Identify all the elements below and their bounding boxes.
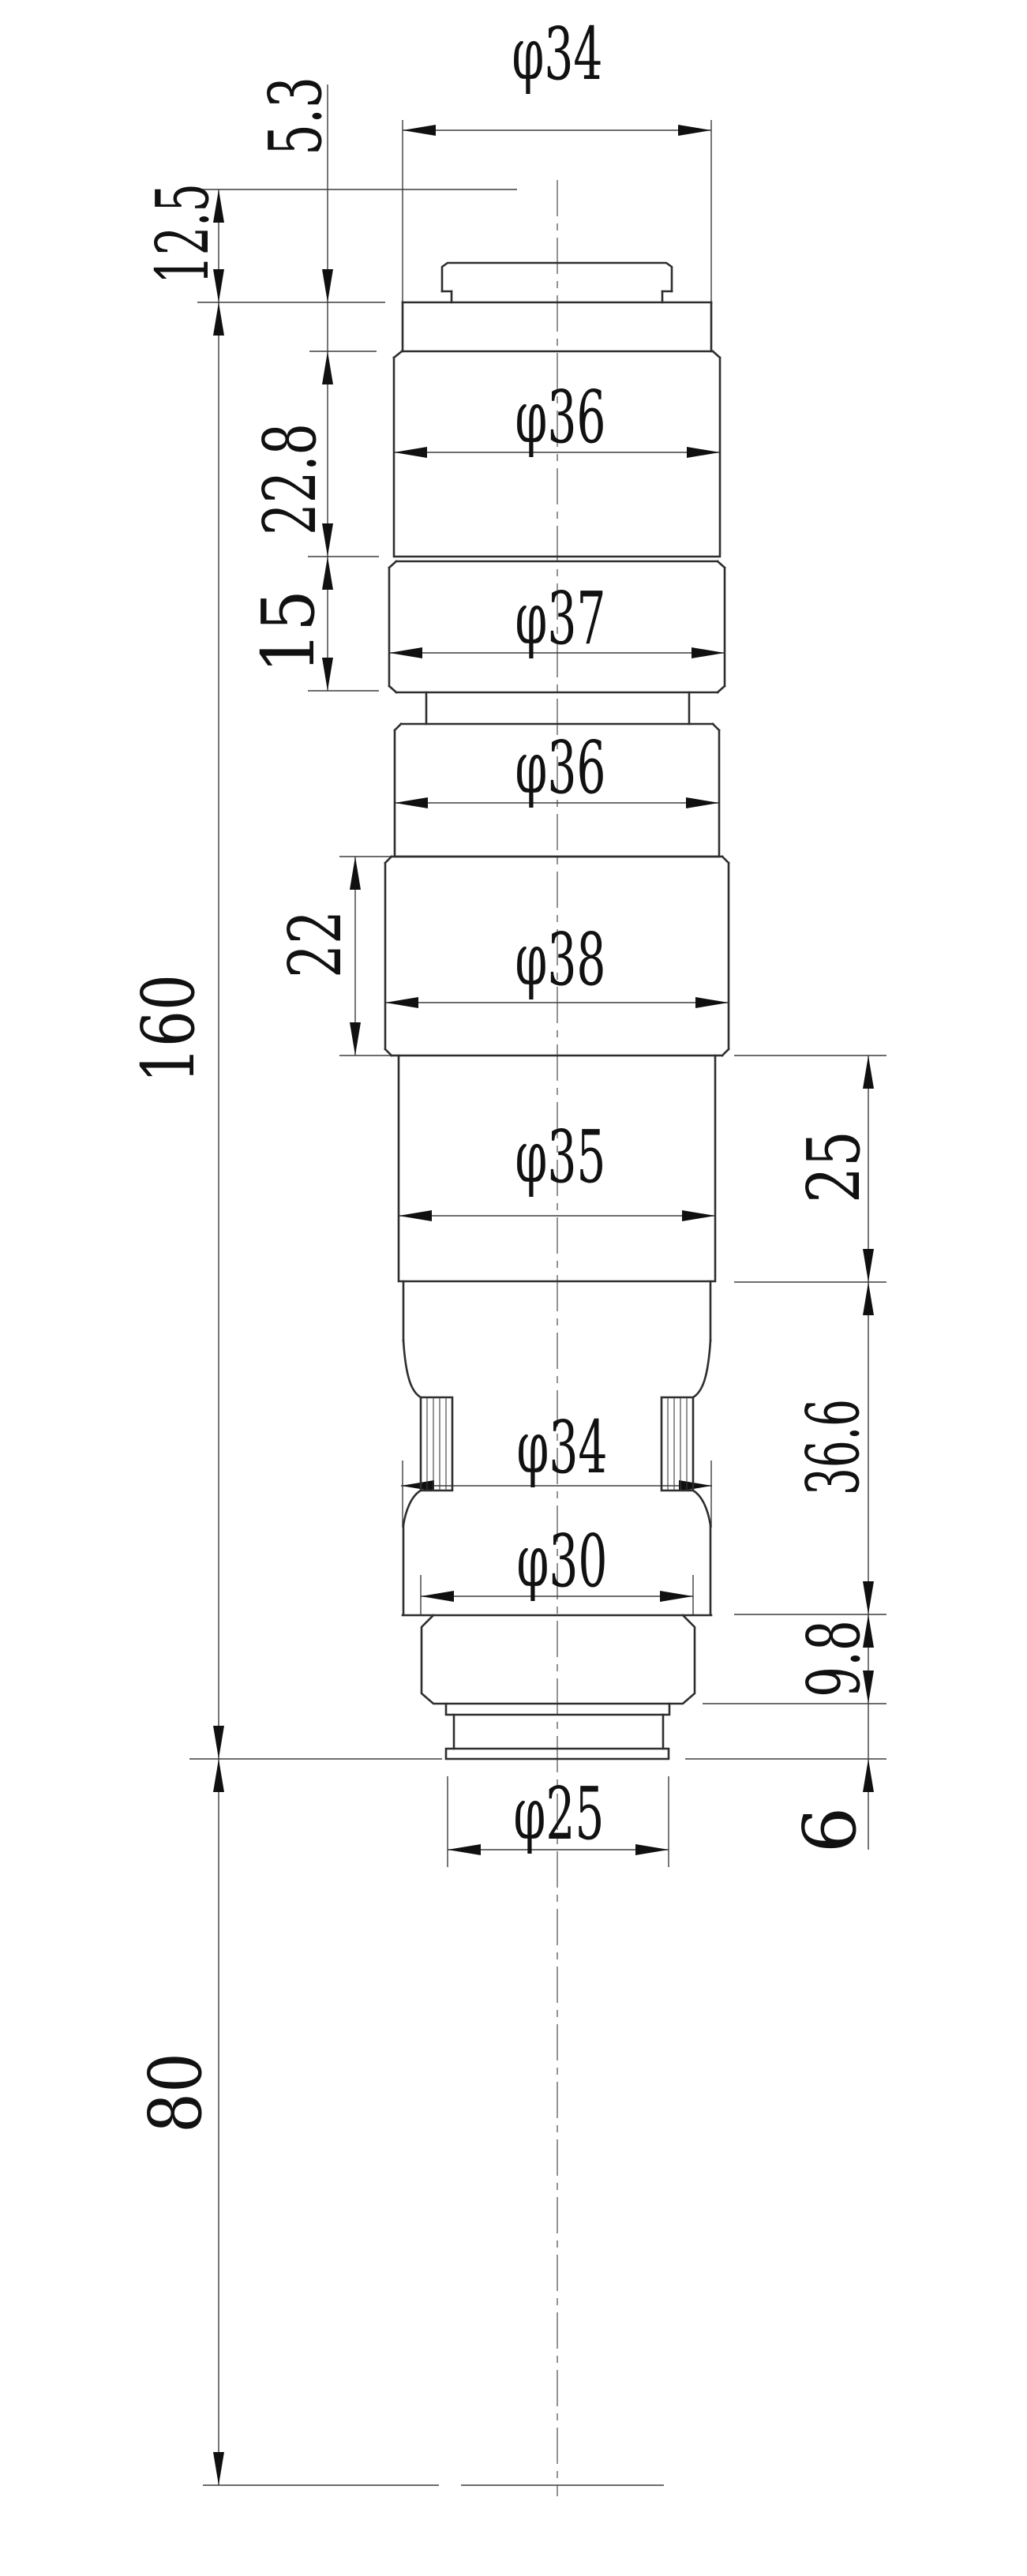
label-dia-38: φ38 bbox=[515, 917, 606, 1002]
label-dia-25: φ25 bbox=[514, 1772, 605, 1856]
label-dia-30: φ30 bbox=[517, 1519, 608, 1603]
label-len-80: 80 bbox=[133, 2053, 218, 2133]
label-dia-36-lower: φ36 bbox=[515, 726, 606, 810]
label-len-25: 25 bbox=[792, 1131, 876, 1203]
label-dia-36-upper: φ36 bbox=[515, 375, 606, 459]
label-len-6: 6 bbox=[788, 1807, 872, 1854]
flange bbox=[422, 1615, 695, 1704]
label-len-36-6: 36.6 bbox=[791, 1399, 875, 1495]
knurl-band-right bbox=[662, 1397, 693, 1490]
label-len-15: 15 bbox=[246, 590, 331, 673]
label-len-12-5: 12.5 bbox=[141, 183, 225, 284]
dimension-labels: φ34 φ36 φ37 φ36 φ38 φ35 φ34 φ30 φ25 5.3 … bbox=[126, 12, 876, 2133]
label-dia-34-top: φ34 bbox=[512, 12, 603, 96]
drawing-svg: φ34 φ36 φ37 φ36 φ38 φ35 φ34 φ30 φ25 5.3 … bbox=[0, 0, 1027, 2576]
label-len-22: 22 bbox=[273, 910, 358, 978]
label-len-5-3: 5.3 bbox=[253, 77, 338, 156]
rear-stub bbox=[454, 1715, 663, 1749]
label-len-22-8: 22.8 bbox=[248, 423, 332, 535]
label-dia-35: φ35 bbox=[515, 1115, 606, 1199]
label-dia-34-knurl: φ34 bbox=[517, 1405, 608, 1490]
label-len-9-8: 9.8 bbox=[792, 1620, 876, 1697]
knurl-band-left bbox=[421, 1397, 452, 1490]
label-dia-37: φ37 bbox=[515, 576, 606, 661]
label-len-160: 160 bbox=[126, 974, 211, 1083]
technical-drawing-page: φ34 φ36 φ37 φ36 φ38 φ35 φ34 φ30 φ25 5.3 … bbox=[0, 0, 1027, 2576]
